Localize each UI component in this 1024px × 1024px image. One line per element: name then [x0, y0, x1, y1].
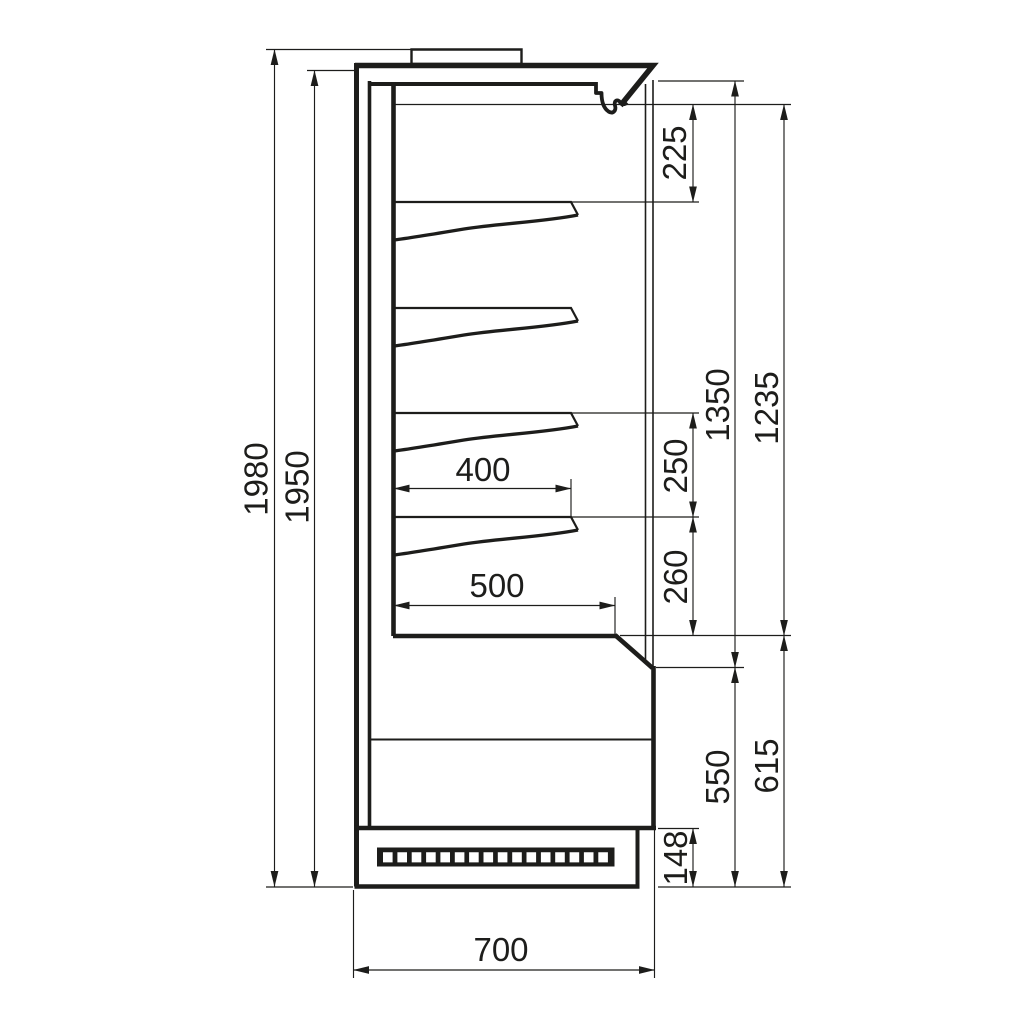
- shelf-4-underside: [394, 530, 578, 555]
- shelf-4-top: [394, 517, 578, 530]
- shelf-3-top: [394, 413, 578, 426]
- dim-label-base-height-inner: 550: [699, 749, 736, 804]
- canopy-curl-detail: [596, 82, 627, 113]
- dim-label-base-height-outer: 615: [748, 738, 785, 793]
- shelf-2-top: [394, 308, 578, 321]
- dim-label-opening-height-inner: 1235: [748, 371, 785, 444]
- canopy-topper-box: [412, 50, 522, 65]
- cabinet-side-section-drawing: 1980 1950 225 250 260 148 1350 550 1235 …: [0, 0, 1024, 1024]
- dim-label-overall-depth: 700: [473, 931, 528, 968]
- shelf-1-underside: [394, 215, 578, 240]
- dim-label-well-depth: 500: [469, 567, 524, 604]
- dim-label-canopy-to-first-shelf: 225: [656, 125, 693, 180]
- dim-label-body-height: 1950: [279, 450, 316, 523]
- shelf-3-underside: [394, 426, 578, 451]
- shelf-2-underside: [394, 321, 578, 346]
- dimension-labels: 1980 1950 225 250 260 148 1350 550 1235 …: [238, 125, 786, 968]
- dim-label-shelf-depth: 400: [455, 451, 510, 488]
- extension-lines: [266, 50, 791, 979]
- dim-label-shelf-spacing-lower: 260: [657, 549, 694, 604]
- floor-front-diagonal: [615, 635, 653, 668]
- dim-label-opening-height-outer: 1350: [699, 368, 736, 441]
- dim-label-overall-height: 1980: [238, 442, 275, 515]
- dim-label-shelf-spacing-upper: 250: [657, 438, 694, 493]
- dim-label-plinth-height: 148: [657, 830, 694, 885]
- technical-drawing-page: 1980 1950 225 250 260 148 1350 550 1235 …: [0, 0, 1024, 1024]
- shelf-1-top: [394, 202, 578, 215]
- dimension-lines: [275, 50, 785, 971]
